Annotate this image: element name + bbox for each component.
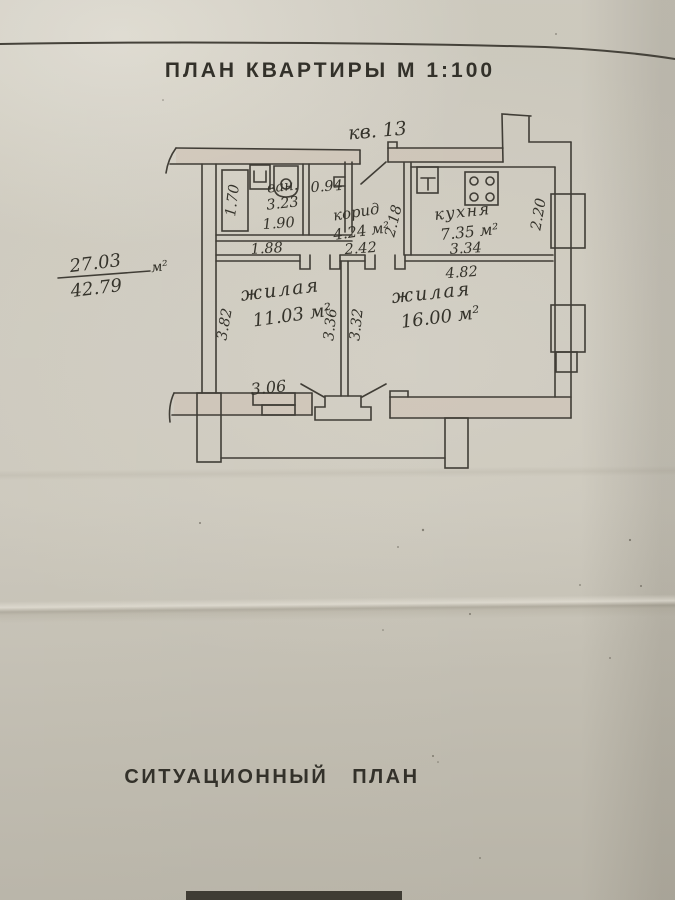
living-room-1-name: жилая — [239, 274, 321, 306]
balcony-door-swing-right — [362, 384, 386, 397]
corridor-width-dim: 2.42 — [343, 240, 377, 258]
apartment-number-label: кв. 13 — [347, 118, 407, 145]
area-unit-label: м² — [150, 258, 170, 276]
bathroom-area-label: 3.23 — [266, 194, 300, 213]
kitchen-sink-fixture — [417, 167, 438, 193]
living-room-1-left-dim: 3.82 — [214, 307, 235, 342]
living-room-1-right-dim: 3.36 — [321, 308, 340, 342]
living-room-2-top-dim: 4.82 — [444, 264, 478, 282]
kitchen-width-dim: 3.34 — [449, 240, 482, 258]
living-room-1-area: 11.03 м² — [251, 300, 333, 332]
living-room-2-area: 16.00 м² — [400, 302, 481, 333]
right-wall-niches — [551, 194, 585, 372]
living-room-2-left-dim: 3.32 — [347, 308, 366, 342]
situational-plan-frame-top — [186, 891, 402, 900]
floor-plan-drawing: ПЛАН КВАРТИРЫ М 1:100 кв. 13 — [0, 0, 675, 900]
top-rule-line — [0, 43, 675, 59]
total-area-value: 42.79 — [68, 275, 123, 302]
bathroom-outer-dim: 1.88 — [250, 240, 283, 258]
bathtub-length-dim: 1.70 — [223, 184, 243, 218]
page-title: ПЛАН КВАРТИРЫ М 1:100 — [165, 59, 495, 82]
entrance-door-swing — [361, 162, 386, 184]
cross-wall — [216, 255, 553, 269]
bathroom-width-dim: 1.90 — [262, 215, 295, 233]
wc-area-label: 0.94 — [310, 178, 343, 196]
kitchen-name-label: кухня — [433, 199, 491, 224]
right-pier — [445, 418, 468, 468]
kitchen-depth-dim: 2.20 — [528, 197, 550, 233]
corridor-depth-dim: 2.18 — [382, 203, 406, 239]
living-room-1-bottom-dim: 3.06 — [250, 376, 287, 399]
scanned-floor-plan-page: { "document": { "title": "ПЛАН КВАРТИРЫ … — [0, 0, 675, 900]
section-title: СИТУАЦИОННЫЙ ПЛАН — [124, 764, 419, 788]
area-summary: 27.03 42.79 м² — [58, 250, 169, 302]
bathroom-name-label: ван. — [266, 177, 299, 196]
